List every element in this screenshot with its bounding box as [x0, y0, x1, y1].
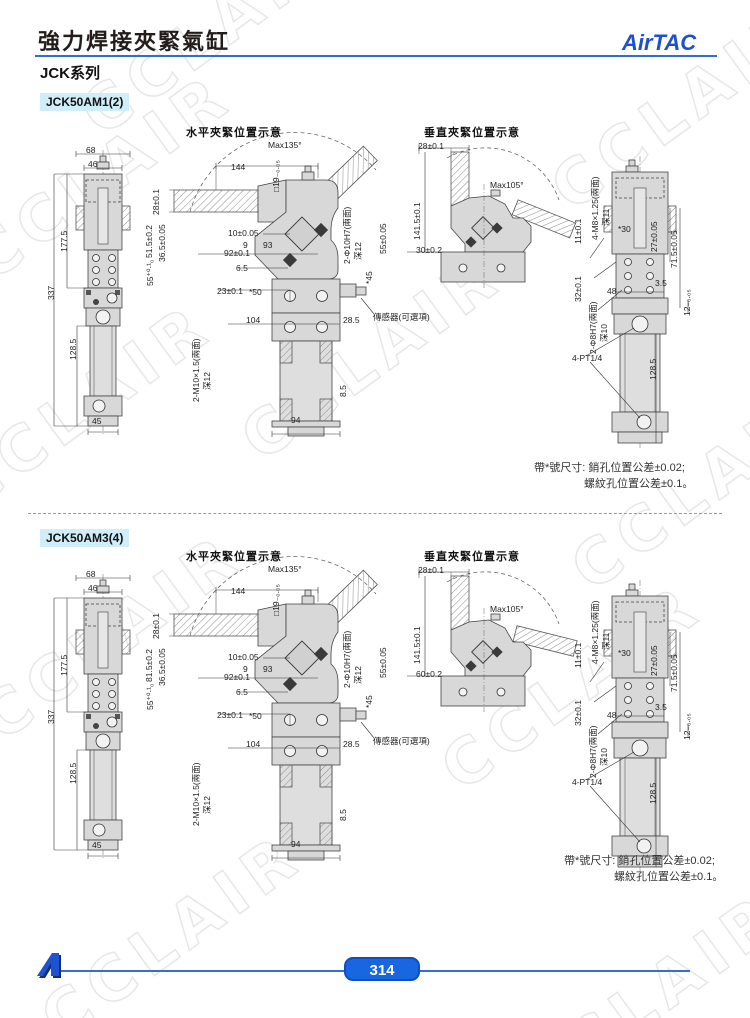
- dim-label: 141.5±0.1: [413, 202, 422, 240]
- dim-label: 深10: [600, 324, 609, 342]
- dim-label: *30: [618, 649, 631, 658]
- dim-label: 12₋₀.₀₅: [683, 713, 692, 740]
- tolerance-note-line2: 螺紋孔位置公差±0.1。: [614, 868, 723, 884]
- dim-label: 2-Φ10H7(兩面): [343, 207, 352, 264]
- dim-label: *50: [249, 712, 262, 721]
- dim-label: 6.5: [236, 264, 248, 273]
- dim-label: *45: [365, 695, 374, 708]
- dim-label: 27±0.05: [650, 645, 659, 676]
- dim-label: 46: [88, 584, 97, 593]
- dim-label: 4-PT1/4: [572, 354, 602, 363]
- dim-label: 28±0.1: [152, 189, 161, 215]
- section-divider: [28, 513, 722, 514]
- dim-label: 128.5: [69, 339, 78, 360]
- dim-label: 2-M10×1.5(兩面): [192, 762, 201, 826]
- dim-label: Max135°: [268, 141, 302, 150]
- dim-label: 104: [246, 740, 260, 749]
- dim-label: Max135°: [268, 565, 302, 574]
- dim-label: 55±0.05: [379, 223, 388, 254]
- dim-label: 深11: [602, 633, 611, 650]
- dim-label: 28±0.1: [152, 613, 161, 639]
- catalog-page: CCLAIR CCLAIR CCLAIR CCLAIR CCLAIR CCLAI…: [0, 0, 750, 1018]
- dim-label: 94: [291, 840, 300, 849]
- vertical-clamp-drawing: [405, 562, 580, 717]
- dim-label: 94: [291, 416, 300, 425]
- dim-label: 144: [231, 163, 245, 172]
- dim-label: 2-Φ10H7(兩面): [343, 631, 352, 688]
- dim-label: 81.5±0.2: [145, 649, 154, 682]
- dim-label: 30±0.2: [416, 246, 442, 255]
- airtac-a-mark-icon: [34, 950, 70, 982]
- dim-label: 11±0.1: [574, 643, 583, 668]
- dim-label: 45: [92, 417, 101, 426]
- dim-label: 36.5±0.05: [158, 648, 167, 686]
- dim-label: *30: [618, 225, 631, 234]
- model-badge: JCK50AM1(2): [40, 93, 129, 111]
- vertical-clamp-drawing: [405, 138, 580, 293]
- dim-label: 128.5: [69, 763, 78, 784]
- dim-label: 92±0.1: [224, 249, 250, 258]
- dim-label: 32±0.1: [574, 700, 583, 726]
- dim-label: 23±0.1: [217, 287, 243, 296]
- dim-label: 12₋₀.₀₅: [683, 289, 692, 316]
- dim-label: 55±0.05: [379, 647, 388, 678]
- front-view-drawing: [46, 140, 186, 440]
- dim-label: 68: [86, 570, 95, 579]
- dim-label: 128.5: [649, 359, 658, 380]
- dim-label: 深12: [203, 372, 212, 390]
- model-badge: JCK50AM3(4): [40, 529, 129, 547]
- dim-label: *45: [365, 271, 374, 284]
- horizontal-clamp-drawing: [168, 562, 403, 862]
- dim-label: □19₋₀.₀₅: [272, 584, 281, 616]
- dim-label: 2-Φ8H7(兩面): [589, 725, 598, 778]
- dim-label: 23±0.1: [217, 711, 243, 720]
- dim-label: 177.5: [60, 231, 69, 252]
- series-label: JCK系列: [40, 62, 100, 83]
- dim-label: 3.5: [655, 703, 667, 712]
- dim-label: 51.5±0.2: [145, 225, 154, 258]
- dim-label: 2-Φ8H7(兩面): [589, 301, 598, 354]
- dim-label: 128.5: [649, 783, 658, 804]
- dim-label: 32±0.1: [574, 276, 583, 302]
- dim-label: 11±0.1: [574, 219, 583, 244]
- dim-label: 48: [607, 287, 616, 296]
- dim-label: 36.5±0.05: [158, 224, 167, 262]
- dim-label: 104: [246, 316, 260, 325]
- dim-label: 深11: [602, 209, 611, 226]
- dim-label: 71.5±0.05: [670, 230, 679, 268]
- dim-label: 71.5±0.05: [670, 654, 679, 692]
- dim-label: 337: [47, 710, 56, 724]
- dim-label: 6.5: [236, 688, 248, 697]
- dim-label: 55⁺⁰·¹₀: [146, 259, 155, 286]
- tolerance-note-line1: 帶*號尺寸: 銷孔位置公差±0.02;: [564, 852, 715, 868]
- front-view-drawing: [46, 564, 186, 864]
- dim-label: □19₋₀.₀₅: [272, 160, 281, 192]
- dim-label: 10±0.05: [228, 229, 259, 238]
- title-rule: [35, 55, 717, 57]
- dim-label: 傳感器(可選項): [373, 313, 430, 322]
- dim-label: Max105°: [490, 605, 524, 614]
- dim-label: 28±0.1: [418, 566, 444, 575]
- dim-label: 46: [88, 160, 97, 169]
- dim-label: 深12: [354, 666, 363, 684]
- horizontal-clamp-drawing: [168, 138, 403, 438]
- dim-label: 10±0.05: [228, 653, 259, 662]
- dim-label: 337: [47, 286, 56, 300]
- dim-label: 3.5: [655, 279, 667, 288]
- dim-label: 28.5: [343, 740, 360, 749]
- dim-label: 177.5: [60, 655, 69, 676]
- dim-label: 4-PT1/4: [572, 778, 602, 787]
- dim-label: 45: [92, 841, 101, 850]
- dim-label: 8.5: [339, 809, 348, 821]
- dim-label: 深10: [600, 748, 609, 766]
- dim-label: 28.5: [343, 316, 360, 325]
- dim-label: 2-M10×1.5(兩面): [192, 338, 201, 402]
- dim-label: *50: [249, 288, 262, 297]
- dim-label: 141.5±0.1: [413, 626, 422, 664]
- tolerance-note-line2: 螺紋孔位置公差±0.1。: [584, 475, 693, 491]
- dim-label: 深12: [354, 242, 363, 260]
- dim-label: 93: [263, 241, 272, 250]
- dim-label: 60±0.2: [416, 670, 442, 679]
- dim-label: 深12: [203, 796, 212, 814]
- dim-label: 27±0.05: [650, 221, 659, 252]
- dim-label: 48: [607, 711, 616, 720]
- dim-label: 4-M8×1.25(兩面): [591, 600, 600, 664]
- dim-label: Max105°: [490, 181, 524, 190]
- dim-label: 93: [263, 665, 272, 674]
- page-title: 強力焊接夾緊氣缸: [38, 24, 230, 56]
- dim-label: 4-M8×1.25(兩面): [591, 176, 600, 240]
- dim-label: 28±0.1: [418, 142, 444, 151]
- dim-label: 68: [86, 146, 95, 155]
- dim-label: 傳感器(可選項): [373, 737, 430, 746]
- dim-label: 92±0.1: [224, 673, 250, 682]
- dim-label: 144: [231, 587, 245, 596]
- tolerance-note-line1: 帶*號尺寸: 銷孔位置公差±0.02;: [534, 459, 685, 475]
- airtac-logo: AirTAC: [622, 30, 696, 56]
- page-number: 314: [344, 957, 420, 981]
- dim-label: 55⁺⁰·¹₀: [146, 683, 155, 710]
- dim-label: 8.5: [339, 385, 348, 397]
